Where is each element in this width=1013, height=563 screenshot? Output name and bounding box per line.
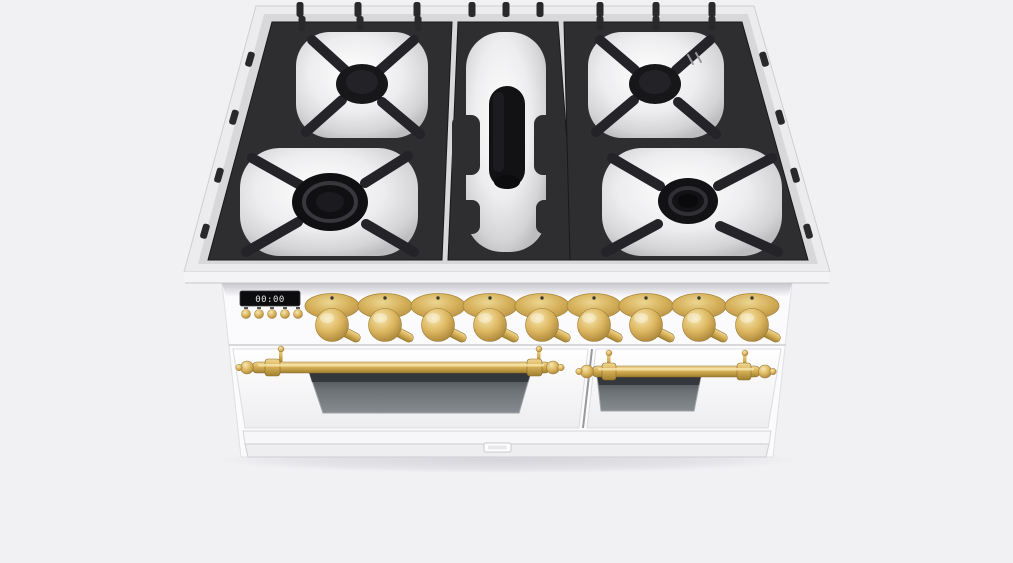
panel-button: [294, 310, 303, 319]
panel-button: [281, 310, 290, 319]
oven-door-right: [576, 349, 781, 428]
burner-rear-right: [588, 32, 724, 138]
panel-button: [268, 310, 277, 319]
kickplate: [243, 431, 771, 457]
burner-rear-left: [296, 32, 428, 138]
clock-display: 00:00: [240, 291, 300, 306]
grate-back-pins: [297, 2, 716, 17]
oven-doors: [233, 346, 781, 428]
burner-center-oval: [489, 86, 525, 189]
brand-badge: [484, 443, 511, 452]
grate-section-center: [448, 22, 576, 260]
product-viewer[interactable]: 00:00: [0, 0, 1013, 563]
burner-front-right: [602, 148, 782, 256]
cooktop: [184, 2, 830, 283]
panel-button: [242, 310, 251, 319]
oven-door-left: [233, 346, 588, 428]
knob-row: [305, 294, 782, 344]
clock-display-value: 00:00: [255, 295, 285, 305]
panel-button: [255, 310, 264, 319]
burner-front-left-dual: [240, 148, 418, 256]
